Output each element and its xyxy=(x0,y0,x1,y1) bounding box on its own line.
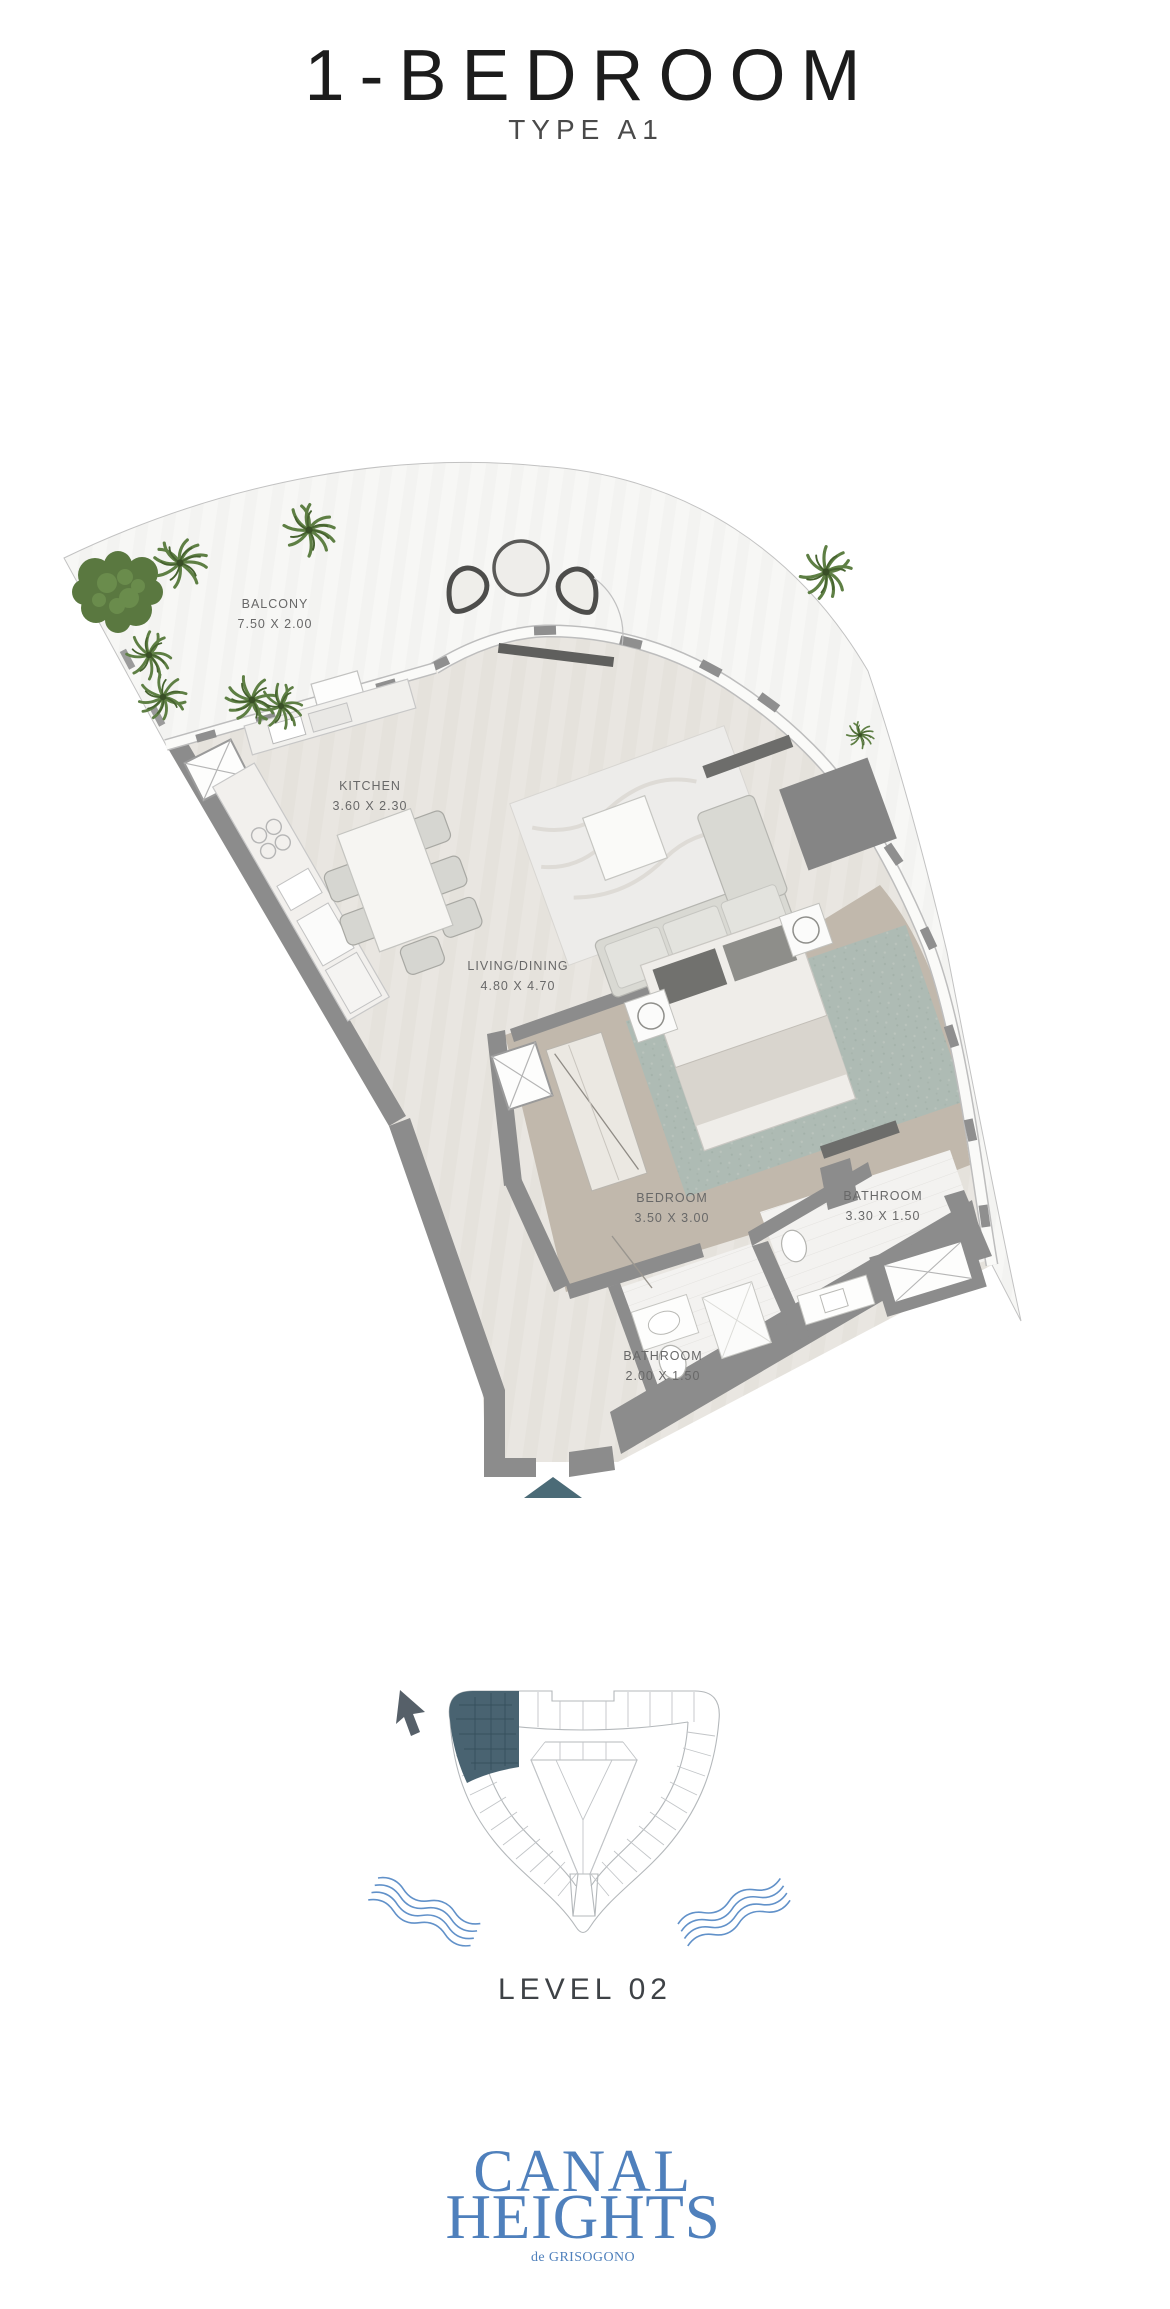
svg-text:1-BEDROOM: 1-BEDROOM xyxy=(304,36,875,116)
svg-text:3.60 X 2.30: 3.60 X 2.30 xyxy=(333,799,408,813)
svg-text:BATHROOM: BATHROOM xyxy=(843,1189,922,1203)
svg-text:4.80 X 4.70: 4.80 X 4.70 xyxy=(481,979,556,993)
svg-text:BALCONY: BALCONY xyxy=(242,597,309,611)
svg-text:LEVEL 02: LEVEL 02 xyxy=(498,1973,672,2006)
svg-text:BEDROOM: BEDROOM xyxy=(636,1191,708,1205)
svg-text:BATHROOM: BATHROOM xyxy=(623,1349,702,1363)
svg-text:de GRISOGONO: de GRISOGONO xyxy=(531,2250,635,2265)
svg-text:KITCHEN: KITCHEN xyxy=(339,779,401,793)
svg-text:3.50 X 3.00: 3.50 X 3.00 xyxy=(635,1211,710,1225)
svg-text:LIVING/DINING: LIVING/DINING xyxy=(467,959,568,973)
svg-text:2.00 X 1.50: 2.00 X 1.50 xyxy=(626,1369,701,1383)
svg-text:7.50 X 2.00: 7.50 X 2.00 xyxy=(238,617,313,631)
svg-text:HEIGHTS: HEIGHTS xyxy=(445,2182,720,2252)
svg-text:3.30 X 1.50: 3.30 X 1.50 xyxy=(846,1209,921,1223)
svg-text:TYPE A1: TYPE A1 xyxy=(508,114,664,145)
